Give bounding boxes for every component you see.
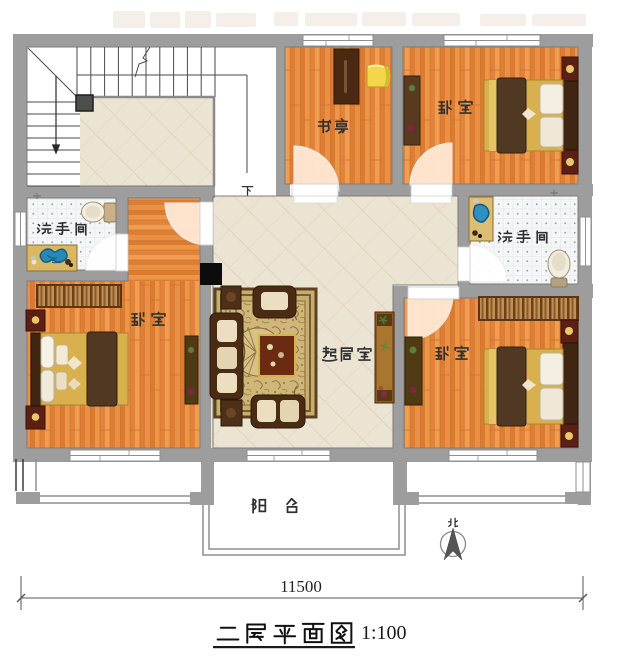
svg-text:1:100: 1:100 (361, 622, 407, 644)
svg-text:11500: 11500 (280, 577, 322, 596)
